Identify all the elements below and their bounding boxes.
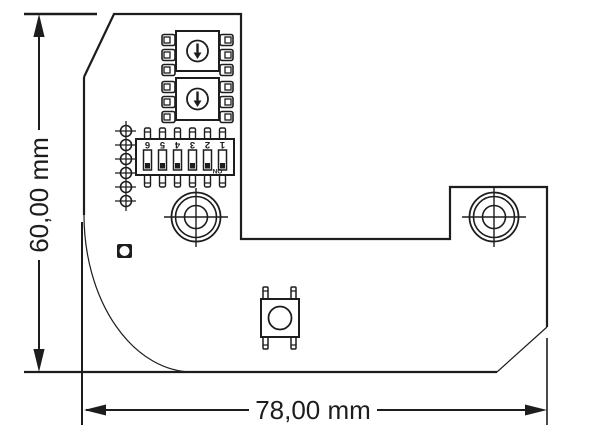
pin-end	[164, 99, 170, 105]
pin-end	[225, 37, 231, 43]
pin	[145, 128, 151, 139]
rotary-switch-1	[162, 31, 233, 76]
arrow-right-icon	[525, 405, 547, 416]
dip-label: 5	[159, 139, 165, 150]
pin	[190, 175, 196, 187]
drawing-canvas: 60,00 mm 78,00 mm	[0, 0, 600, 444]
pin	[160, 175, 166, 187]
dip-slider-knob	[175, 163, 180, 169]
pin-end	[164, 84, 170, 90]
dip-label: 1	[219, 139, 225, 150]
rotary-switch-1-pins-left	[162, 35, 175, 76]
pin-end	[225, 84, 231, 90]
arrow-up-icon	[33, 14, 44, 37]
dip-switch-pins-bottom	[145, 175, 226, 187]
dip-label: 6	[145, 139, 150, 150]
rotary-switch-2	[162, 78, 233, 123]
pcb-dimension-drawing: 60,00 mm 78,00 mm	[0, 0, 600, 444]
board-corner-arc	[84, 215, 193, 372]
rotary-switch-1-pins-right	[220, 35, 233, 76]
pin-end	[164, 114, 170, 120]
led-indicator	[117, 244, 132, 258]
height-dimension: 60,00 mm	[24, 14, 97, 372]
dip-on-label: ON	[212, 167, 222, 174]
pin	[160, 128, 166, 139]
mounting-hole-left	[164, 188, 228, 247]
pin-end	[225, 67, 231, 73]
pin-end	[225, 114, 231, 120]
dip-slider-knob	[205, 163, 210, 169]
height-dimension-label: 60,00 mm	[24, 137, 54, 253]
dip-label: 2	[205, 139, 210, 150]
arrow-down-icon	[33, 349, 44, 372]
mounting-hole-right	[462, 188, 526, 247]
arrow-left-icon	[84, 405, 106, 416]
push-button	[261, 287, 299, 349]
dip-slider-knob	[145, 163, 150, 169]
pin-end	[164, 67, 170, 73]
pin-end	[164, 37, 170, 43]
width-dimension-label: 78,00 mm	[255, 395, 371, 425]
pin	[220, 175, 226, 187]
dip-slider-knob	[190, 163, 195, 169]
pin-end	[225, 52, 231, 58]
board-chamfer-bottom-right	[497, 327, 547, 372]
pin	[205, 128, 211, 139]
pin	[190, 128, 196, 139]
dip-switch: 6 5 4 3 2 1 ON	[136, 128, 234, 187]
pin	[175, 128, 181, 139]
dip-switch-pins-top	[145, 128, 226, 139]
dip-slider-knob	[160, 163, 165, 169]
pin	[205, 175, 211, 187]
pin-end	[164, 52, 170, 58]
pin	[175, 175, 181, 187]
rotary-switch-2-pins-right	[220, 82, 233, 123]
solder-pad-column	[115, 121, 136, 211]
pin	[145, 175, 151, 187]
led-lens	[120, 246, 130, 256]
dip-label: 4	[174, 139, 180, 150]
dip-label: 3	[190, 139, 195, 150]
rotary-switch-2-pins-left	[162, 82, 175, 123]
pin-end	[225, 99, 231, 105]
pin	[220, 128, 226, 139]
width-dimension: 78,00 mm	[82, 222, 547, 425]
push-button-actuator	[269, 307, 292, 330]
